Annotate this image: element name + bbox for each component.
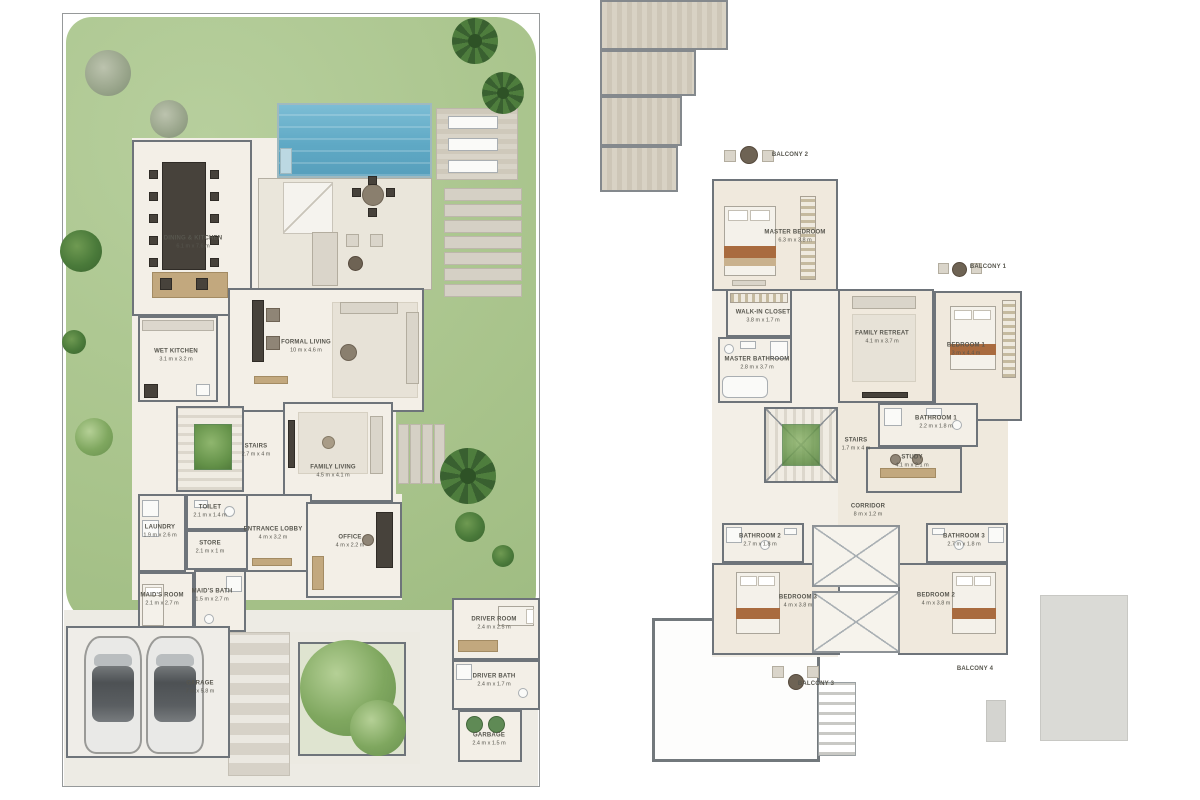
label-balcony-3: BALCONY 3 xyxy=(798,681,834,689)
outdoor-chair xyxy=(346,234,359,247)
label-balcony-4: BALCONY 4 xyxy=(957,666,993,674)
balcony-chair xyxy=(938,263,949,274)
path-slat xyxy=(422,424,433,484)
label-master-bathroom: MASTER BATHROOM2.8 m x 3.7 m xyxy=(725,357,790,372)
lounge-chair xyxy=(266,336,280,350)
shower xyxy=(988,527,1004,543)
wardrobe xyxy=(1002,300,1016,378)
label-toilet: TOILET2.1 m x 1.4 m xyxy=(193,505,226,520)
bathtub xyxy=(722,376,768,398)
courtyard-tree xyxy=(350,700,406,756)
wc xyxy=(724,344,734,354)
pillow xyxy=(956,576,973,586)
lounge-chair xyxy=(266,308,280,322)
void-panel xyxy=(812,591,900,653)
study-desk xyxy=(880,468,936,478)
dining-chair xyxy=(149,192,158,201)
wet-kitchen-appliance xyxy=(144,384,158,398)
label-master-bedroom: MASTER BEDROOM6.3 m x 3.8 m xyxy=(764,230,825,245)
label-laundry: LAUNDRY1.9 m x 2.6 m xyxy=(143,525,176,540)
dining-table xyxy=(162,162,206,270)
dining-chair xyxy=(210,170,219,179)
label-maids-bath: MAID'S BATH1.5 m x 2.7 m xyxy=(192,589,233,604)
patio-table xyxy=(362,184,384,206)
label-wet-kitchen: WET KITCHEN3.1 m x 3.2 m xyxy=(154,349,198,364)
tree xyxy=(85,50,131,96)
entry-console xyxy=(252,558,292,566)
external-stair xyxy=(818,682,856,756)
balcony-2 xyxy=(600,0,728,50)
balcony-table xyxy=(740,146,758,164)
kitchen-hob xyxy=(196,278,208,290)
vanity-sink xyxy=(784,528,797,535)
pergola xyxy=(283,182,333,234)
label-garage: GARAGE7 m x 5.8 m xyxy=(186,681,215,696)
sofa xyxy=(340,302,398,314)
sun-lounger xyxy=(448,116,498,129)
pillow xyxy=(750,210,770,221)
label-driver-room: DRIVER ROOM2.4 m x 2.5 m xyxy=(471,617,516,632)
label-formal-living: FORMAL LIVING10 m x 4.6 m xyxy=(281,340,331,355)
balcony-chair xyxy=(807,666,819,678)
path-slat xyxy=(444,252,522,265)
retreat-sofa xyxy=(852,296,916,309)
outdoor-chair xyxy=(370,234,383,247)
palm-tree xyxy=(440,448,496,504)
path-slat xyxy=(444,220,522,233)
swimming-pool xyxy=(277,103,432,178)
maid-wc xyxy=(204,614,214,624)
bush xyxy=(455,512,485,542)
bed-throw xyxy=(736,608,780,619)
sun-lounger xyxy=(448,160,498,173)
path-slat xyxy=(444,236,522,249)
side-table xyxy=(322,436,335,449)
outdoor-sofa xyxy=(312,232,338,286)
dining-chair xyxy=(149,214,158,223)
label-corridor: CORRIDOR8 m x 1.2 m xyxy=(851,504,885,519)
balcony-table xyxy=(952,262,967,277)
patio-chair xyxy=(386,188,395,197)
pillow xyxy=(728,210,748,221)
path-slat xyxy=(444,284,522,297)
label-stairs-ff: STAIRS1.7 m x 4 m xyxy=(842,438,871,453)
ground-floor-plan: DINING & KITCHEN6.1 m x 7.6 m WET KITCHE… xyxy=(0,0,600,800)
bed-throw xyxy=(724,246,776,258)
label-store: STORE2.1 m x 1 m xyxy=(196,541,225,556)
label-bedroom-2: BEDROOM 24 m x 3.8 m xyxy=(917,593,955,608)
label-bathroom-3: BATHROOM 32.7 m x 1.8 m xyxy=(943,534,985,549)
stair-planter xyxy=(194,424,232,470)
tv-unit xyxy=(288,420,295,468)
dining-chair xyxy=(149,236,158,245)
path-slat xyxy=(444,204,522,217)
pillow xyxy=(973,310,991,320)
label-bedroom-3: BEDROOM 34 m x 3.8 m xyxy=(779,595,817,610)
sofa xyxy=(406,312,419,384)
label-dining-kitchen: DINING & KITCHEN6.1 m x 7.6 m xyxy=(164,236,223,251)
adjacent-roof-small xyxy=(986,700,1006,742)
label-stairs: STAIRS2.7 m x 4 m xyxy=(242,444,271,459)
dining-chair xyxy=(210,258,219,267)
pool-steps xyxy=(280,148,292,174)
balcony-4 xyxy=(600,146,678,192)
floor-plan-sheet: DINING & KITCHEN6.1 m x 7.6 m WET KITCHE… xyxy=(0,0,1200,800)
label-bedroom-1: BEDROOM 13 m x 4.4 m xyxy=(947,343,985,358)
bed-bench xyxy=(732,280,766,286)
car-icon xyxy=(84,636,142,754)
garbage-bin xyxy=(466,716,483,733)
label-garbage: GARBAGE2.4 m x 1.5 m xyxy=(472,733,505,748)
pillow xyxy=(526,609,534,624)
retreat-tv xyxy=(862,392,908,398)
tree xyxy=(150,100,188,138)
driver-wardrobe xyxy=(458,640,498,652)
balcony-3 xyxy=(600,96,682,146)
label-balcony-2: BALCONY 2 xyxy=(772,152,808,160)
console-table xyxy=(254,376,288,384)
tree xyxy=(75,418,113,456)
label-bathroom-1: BATHROOM 12.2 m x 1.8 m xyxy=(915,416,957,431)
path-slat xyxy=(444,268,522,281)
pillow xyxy=(740,576,757,586)
patio-chair xyxy=(352,188,361,197)
balcony-1 xyxy=(600,50,696,96)
path-slat xyxy=(444,188,522,201)
adjacent-roof xyxy=(1040,595,1128,741)
office-cabinet xyxy=(312,556,324,590)
vanity-sink xyxy=(740,341,756,349)
palm-tree xyxy=(482,72,524,114)
wet-kitchen-sink xyxy=(196,384,210,396)
kitchen-sink xyxy=(160,278,172,290)
coffee-table xyxy=(348,256,363,271)
patio-chair xyxy=(368,176,377,185)
stair-planter xyxy=(782,424,820,466)
garbage-bin xyxy=(488,716,505,733)
label-family-living: FAMILY LIVING4.5 m x 4.1 m xyxy=(310,465,356,480)
patio-chair xyxy=(368,208,377,217)
tree xyxy=(62,330,86,354)
void-panel xyxy=(812,525,900,587)
bed-throw xyxy=(952,608,996,619)
dining-chair xyxy=(149,258,158,267)
tv-console xyxy=(252,300,264,362)
label-entrance-lobby: ENTRANCE LOBBY4 m x 3.2 m xyxy=(244,527,303,542)
dining-chair xyxy=(149,170,158,179)
sofa xyxy=(370,416,383,474)
tree xyxy=(60,230,102,272)
sun-lounger xyxy=(448,138,498,151)
label-balcony-1: BALCONY 1 xyxy=(970,264,1006,272)
pillow xyxy=(758,576,775,586)
balcony-chair xyxy=(724,150,736,162)
dining-chair xyxy=(210,214,219,223)
balcony-chair xyxy=(772,666,784,678)
label-maids-room: MAID'S ROOM2.1 m x 2.7 m xyxy=(140,593,183,608)
driveway xyxy=(228,632,290,776)
path-slat xyxy=(410,424,421,484)
pillow xyxy=(974,576,991,586)
label-bathroom-2: BATHROOM 22.7 m x 1.8 m xyxy=(739,534,781,549)
washing-machine xyxy=(142,500,159,517)
label-study: STUDY4.1 m x 2.1 m xyxy=(895,455,928,470)
bush xyxy=(492,545,514,567)
path-slat xyxy=(398,424,409,484)
retreat-rug xyxy=(852,314,916,382)
pillow xyxy=(954,310,972,320)
shower xyxy=(884,408,902,426)
first-floor-plan: BALCONY 2 MASTER BEDROOM6.3 m x 3.8 m WA… xyxy=(600,0,1200,800)
label-family-retreat: FAMILY RETREAT4.1 m x 3.7 m xyxy=(855,331,909,346)
wet-kitchen-counter xyxy=(142,320,214,331)
palm-tree xyxy=(452,18,498,64)
driver-shower xyxy=(456,664,472,680)
label-office: OFFICE4 m x 2.2 m xyxy=(336,535,365,550)
office-desk xyxy=(376,512,393,568)
label-walk-in-closet: WALK-IN CLOSET3.8 m x 1.7 m xyxy=(736,310,790,325)
label-driver-bath: DRIVER BATH2.4 m x 1.7 m xyxy=(473,674,516,689)
dining-chair xyxy=(210,192,219,201)
driver-wc xyxy=(518,688,528,698)
closet-shelves xyxy=(730,293,788,303)
armchair xyxy=(340,344,357,361)
bed-throw xyxy=(724,258,776,266)
